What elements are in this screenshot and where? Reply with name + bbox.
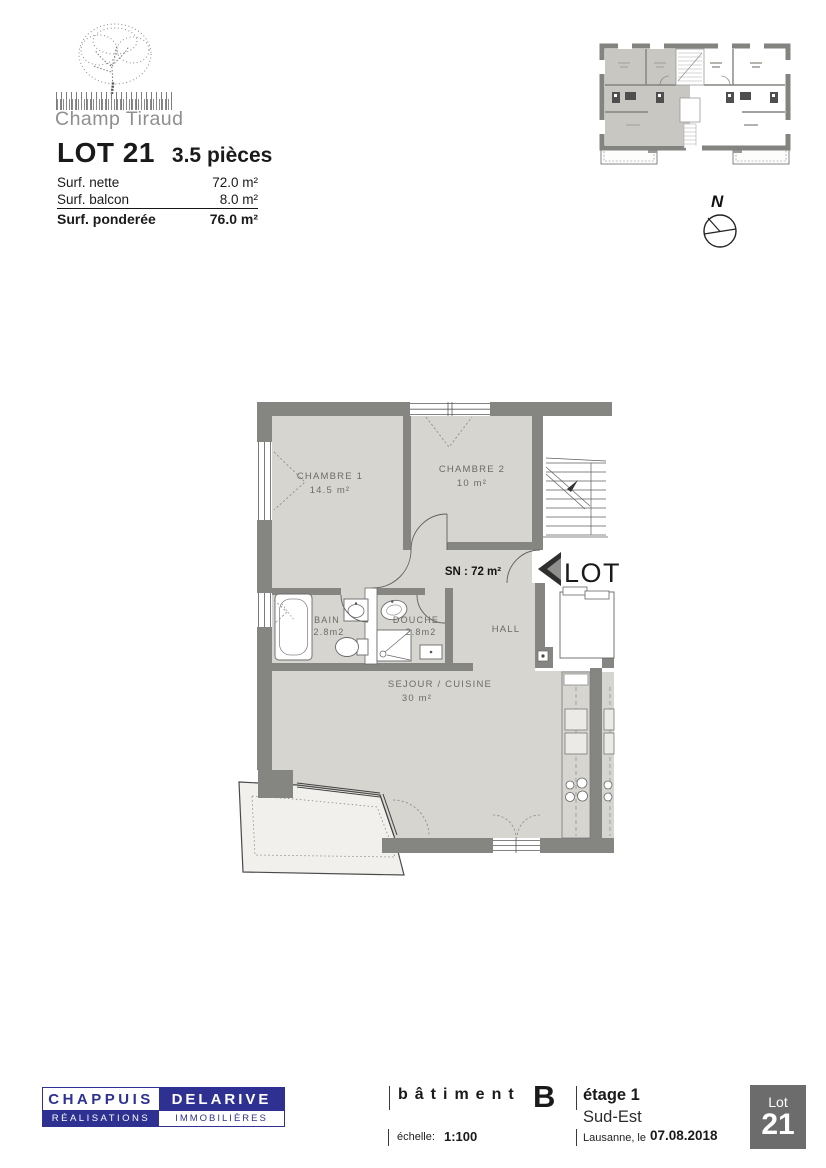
place-label: Lausanne, le (583, 1132, 646, 1144)
floor-plan: LOT 21 CHAMBRE 1 14.5 m² CHAMBRE 2 10 m²… (230, 390, 626, 885)
room-area-douche: 2.8m2 (405, 627, 436, 637)
divider (576, 1129, 577, 1146)
company-name-chappuis: CHAPPUIS (43, 1088, 159, 1110)
scale-value: 1:100 (444, 1129, 477, 1144)
building-label: bâtiment (398, 1086, 521, 1104)
company-tagline-realisations: RÉALISATIONS (43, 1110, 159, 1126)
surface-value: 8.0 m² (220, 191, 258, 208)
surface-label: Surf. balcon (57, 191, 129, 208)
north-compass-icon: N (697, 190, 743, 256)
plan-sheet: { "brand": { "name": "Champ Tiraud" }, "… (0, 0, 826, 1168)
bathtub (275, 594, 312, 660)
company-tagline-immobilieres: IMMOBILIÈRES (159, 1110, 284, 1126)
room-area-bain: 2.8m2 (313, 627, 344, 637)
surface-note: SN : 72 m² (445, 566, 501, 578)
company-name-delarive: DELARIVE (159, 1088, 284, 1110)
tree-logo-icon (55, 20, 175, 94)
building-overview-plan (598, 40, 792, 168)
table-row: Surf. balcon 8.0 m² (57, 191, 258, 209)
room-label-douche: DOUCHE (393, 615, 439, 625)
lot-badge-number: 21 (761, 1110, 794, 1140)
company-logo: CHAPPUIS DELARIVE RÉALISATIONS IMMOBILIÈ… (42, 1087, 285, 1127)
room-label-chambre1: CHAMBRE 1 (297, 471, 363, 482)
surface-label: Surf. nette (57, 174, 119, 191)
divider (389, 1086, 390, 1110)
toilet (336, 638, 359, 657)
surface-table: Surf. nette 72.0 m² Surf. balcon 8.0 m² … (57, 174, 258, 228)
divider (388, 1129, 389, 1146)
room-area-sejour: 30 m² (402, 693, 432, 704)
lot-type: 3.5 pièces (172, 144, 272, 168)
scale-label: échelle: (397, 1131, 435, 1143)
orientation-label: Sud-Est (583, 1108, 642, 1127)
staircase (543, 416, 608, 545)
table-row: Surf. ponderée 76.0 m² (57, 209, 258, 228)
room-area-chambre2: 10 m² (457, 478, 487, 489)
surface-value: 72.0 m² (212, 174, 258, 191)
room-label-hall: HALL (492, 624, 521, 635)
room-label-sejour: SEJOUR / CUISINE (388, 679, 492, 690)
divider (576, 1086, 577, 1110)
floor-label: étage 1 (583, 1086, 640, 1105)
date-value: 07.08.2018 (650, 1128, 718, 1143)
compass-north-label: N (711, 192, 724, 211)
room-label-bain: BAIN (314, 615, 340, 625)
lot-title: LOT 21 (57, 137, 155, 169)
building-value: B (533, 1079, 555, 1115)
room-area-chambre1: 14.5 m² (310, 485, 351, 496)
surface-value: 76.0 m² (210, 211, 258, 228)
plan-lot-flag: LOT 21 (564, 558, 626, 588)
room-label-chambre2: CHAMBRE 2 (439, 464, 505, 475)
lot-heading: LOT 21 3.5 pièces (57, 137, 272, 169)
table-row: Surf. nette 72.0 m² (57, 174, 258, 191)
brand-name: Champ Tiraud (55, 108, 183, 131)
lot-badge: Lot 21 (750, 1085, 806, 1149)
surface-label: Surf. ponderée (57, 211, 156, 228)
